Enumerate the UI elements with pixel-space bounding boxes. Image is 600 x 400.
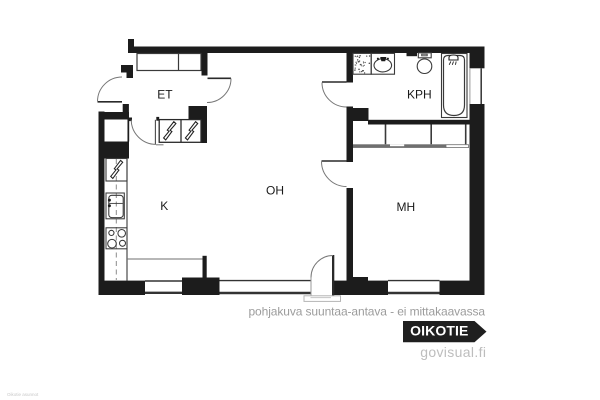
svg-text:K: K bbox=[160, 199, 168, 213]
svg-text:OH: OH bbox=[266, 184, 284, 198]
svg-text:Oikotie asunnot: Oikotie asunnot bbox=[7, 392, 39, 397]
svg-text:KPH: KPH bbox=[407, 87, 432, 101]
svg-text:govisual.fi: govisual.fi bbox=[420, 344, 486, 360]
svg-text:OIKOTIE: OIKOTIE bbox=[410, 323, 468, 339]
svg-text:ET: ET bbox=[157, 87, 173, 101]
svg-text:MH: MH bbox=[396, 200, 415, 214]
svg-text:pohjakuva suuntaa-antava - ei: pohjakuva suuntaa-antava - ei mittakaava… bbox=[248, 305, 485, 319]
